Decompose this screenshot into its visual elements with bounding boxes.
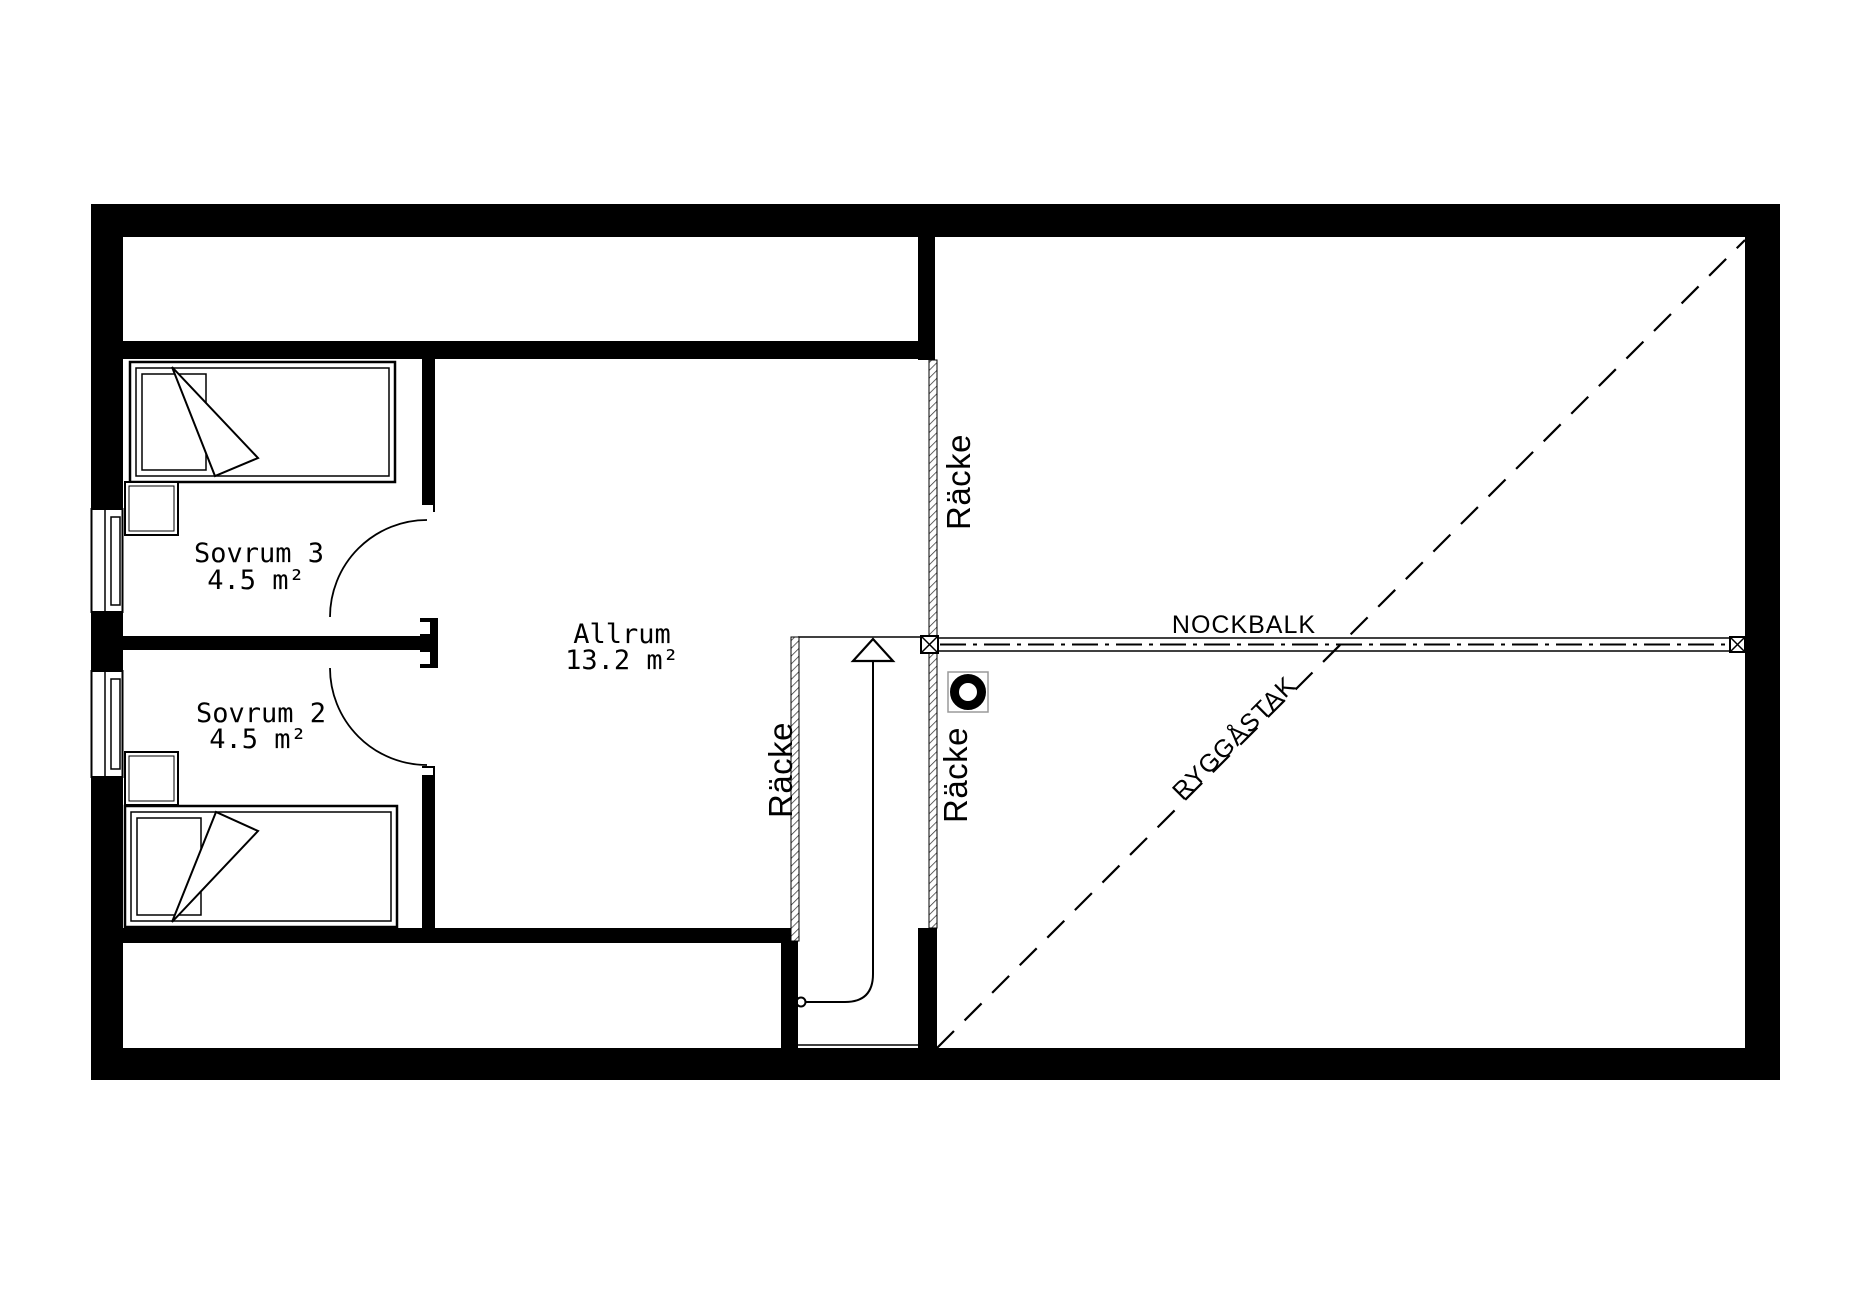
racke-label-right-lower: Räcke	[937, 727, 974, 823]
floor-plan: Sovrum 3 4.5 m² Sovrum 2 4.5 m² Allrum 1…	[0, 0, 1872, 1289]
bed-sovrum2	[125, 806, 397, 927]
wall-outer-bottom	[91, 1048, 1780, 1080]
wall-attic-strip-bottom	[123, 341, 935, 359]
door-stop-notch	[422, 505, 433, 512]
racke-label-left: Räcke	[762, 722, 799, 818]
wall-stair-right	[918, 928, 937, 1048]
window-sovrum2	[90, 670, 124, 778]
nightstand-sovrum3	[125, 482, 178, 535]
nightstand	[125, 752, 178, 805]
door-stop-notch	[422, 768, 433, 775]
window-sovrum3	[90, 508, 124, 613]
room-area-sovrum3: 4.5 m²	[207, 565, 305, 596]
wall-bedroom-east-upper	[422, 359, 435, 512]
window-glass	[111, 679, 120, 769]
nightstand-sovrum2	[125, 752, 178, 805]
wall-bedroom-east-lower	[422, 766, 435, 943]
wall-outer-left	[91, 204, 123, 1080]
door-stop-notch	[420, 652, 430, 664]
wall-stub-top	[918, 237, 935, 360]
racke-label-right-upper: Räcke	[940, 434, 977, 530]
beam-end-crossed-box-icon	[921, 636, 938, 653]
door-stop-notch	[420, 622, 430, 634]
wall-stair-left	[781, 943, 798, 1048]
bed-frame	[130, 362, 395, 482]
room-area-allrum: 13.2 m²	[565, 645, 679, 676]
chimney-symbol-icon	[948, 672, 988, 712]
beam-end-crossed-box-icon	[1730, 637, 1745, 652]
nightstand	[125, 482, 178, 535]
bed-frame	[125, 806, 397, 927]
nockbalk-label: NOCKBALK	[1172, 611, 1316, 639]
room-area-sovrum2: 4.5 m²	[209, 724, 307, 755]
bed-sovrum3	[130, 362, 395, 482]
wall-bottom-strip-top	[123, 928, 798, 943]
wall-outer-right	[1745, 204, 1780, 1080]
window-glass	[111, 517, 120, 605]
floor-plan-canvas: Sovrum 3 4.5 m² Sovrum 2 4.5 m² Allrum 1…	[0, 0, 1872, 1289]
wall-outer-top	[91, 204, 1780, 237]
wall-bedroom-divider	[123, 636, 422, 650]
